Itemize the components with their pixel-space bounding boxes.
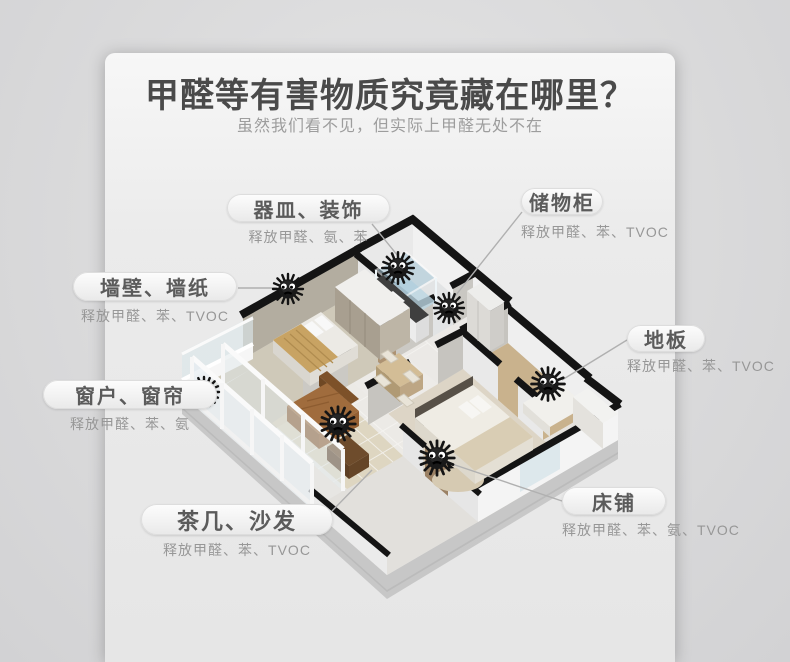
infographic-page: { "header": { "title": "甲醛等有害物质究竟藏在哪里？",… (0, 0, 790, 662)
callout-pill: 床铺 (562, 487, 666, 515)
callout-wall-wallpaper-emission: 释放甲醛、苯、TVOC (62, 306, 248, 326)
callout-floor-emission: 释放甲醛、苯、TVOC (627, 356, 775, 376)
callout-pill: 地板 (627, 325, 705, 352)
callout-bed-emission: 释放甲醛、苯、氨、TVOC (562, 520, 740, 540)
callout-storage-cabinet: 储物柜 (521, 188, 603, 215)
callout-bed: 床铺 (562, 487, 666, 515)
formaldehyde-monster-icon (532, 368, 565, 401)
callout-pill: 窗户、窗帘 (43, 380, 217, 409)
callout-floor: 地板 (627, 325, 705, 352)
callout-pill: 茶几、沙发 (141, 504, 333, 535)
callout-storage-cabinet-emission: 释放甲醛、苯、TVOC (521, 222, 669, 242)
callout-pill: 器皿、装饰 (227, 194, 390, 222)
callout-dishes-decor-emission: 释放甲醛、氨、苯 (227, 227, 390, 247)
callout-dishes-decor: 器皿、装饰 (227, 194, 390, 222)
callout-pill: 储物柜 (521, 188, 603, 215)
callout-window-curtain: 窗户、窗帘 (43, 380, 217, 409)
formaldehyde-monster-icon (321, 407, 356, 442)
formaldehyde-monster-icon (382, 252, 414, 284)
formaldehyde-monster-icon (420, 441, 455, 476)
callout-wall-wallpaper: 墙壁、墙纸 (73, 272, 237, 301)
callout-window-curtain-emission: 释放甲醛、苯、氨 (43, 414, 217, 434)
callout-pill: 墙壁、墙纸 (73, 272, 237, 301)
callout-table-sofa: 茶几、沙发 (141, 504, 333, 535)
formaldehyde-monster-icon (434, 293, 464, 323)
formaldehyde-monster-icon (273, 274, 303, 304)
callout-table-sofa-emission: 释放甲醛、苯、TVOC (141, 540, 333, 560)
